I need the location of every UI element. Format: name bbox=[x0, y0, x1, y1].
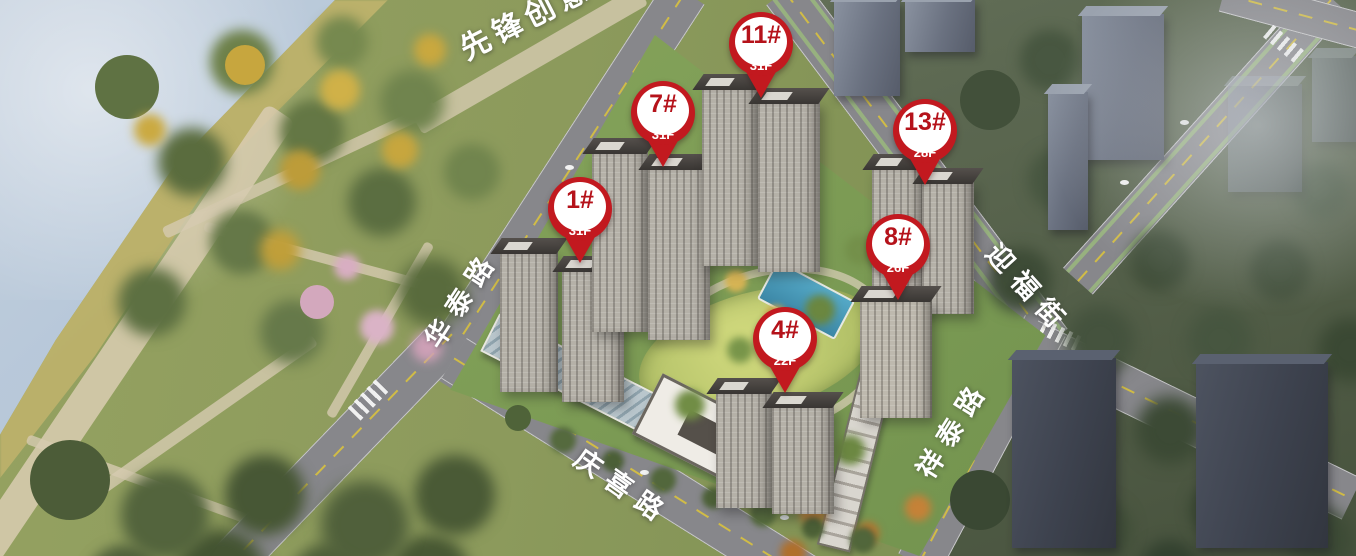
pin-circle: 8# 26F bbox=[866, 214, 930, 278]
pin-floor-count: 31F bbox=[729, 58, 793, 73]
building-pin-13[interactable]: 13# 28F bbox=[893, 99, 957, 187]
city-building-massing bbox=[905, 0, 975, 52]
residential-tower-7b bbox=[648, 168, 710, 340]
residential-tower-11b bbox=[758, 102, 820, 272]
residential-tower-11a bbox=[702, 88, 758, 266]
city-building-massing bbox=[1312, 56, 1356, 142]
tree-cluster-dark bbox=[30, 440, 110, 520]
pin-building-number: 1# bbox=[548, 186, 612, 215]
pin-floor-count: 31F bbox=[631, 127, 695, 142]
tree-cluster-pink bbox=[300, 285, 334, 319]
city-building-massing bbox=[1048, 92, 1088, 230]
pin-circle: 11# 31F bbox=[729, 12, 793, 76]
pin-floor-count: 31F bbox=[548, 223, 612, 238]
pin-building-number: 4# bbox=[753, 316, 817, 345]
building-pin-4[interactable]: 4# 22F bbox=[753, 307, 817, 395]
pin-floor-count: 28F bbox=[893, 145, 957, 160]
building-pin-11[interactable]: 11# 31F bbox=[729, 12, 793, 100]
building-pin-1[interactable]: 1# 31F bbox=[548, 177, 612, 265]
aerial-site-plan: 先锋创意 华泰路 迎福街 祥泰路 庆喜路 1# 31F 4# 22F 7# 31… bbox=[0, 0, 1356, 556]
pin-circle: 7# 31F bbox=[631, 81, 695, 145]
city-building-massing bbox=[1196, 362, 1328, 548]
residential-tower-4a bbox=[716, 392, 772, 508]
city-building-massing bbox=[1082, 14, 1164, 160]
building-pin-8[interactable]: 8# 26F bbox=[866, 214, 930, 302]
roadside-trees bbox=[505, 405, 531, 431]
vehicles bbox=[565, 165, 574, 170]
pin-floor-count: 26F bbox=[866, 260, 930, 275]
residential-tower-1a bbox=[500, 252, 558, 392]
pin-circle: 13# 28F bbox=[893, 99, 957, 163]
pin-circle: 1# 31F bbox=[548, 177, 612, 241]
city-building-massing bbox=[834, 0, 900, 96]
pin-building-number: 13# bbox=[893, 108, 957, 137]
pin-building-number: 11# bbox=[729, 21, 793, 50]
pin-building-number: 8# bbox=[866, 223, 930, 252]
pin-floor-count: 22F bbox=[753, 353, 817, 368]
tree-cluster-yellow bbox=[225, 45, 265, 85]
pin-building-number: 7# bbox=[631, 90, 695, 119]
city-building-massing bbox=[1228, 84, 1302, 192]
city-tree-cluster bbox=[950, 470, 1010, 530]
city-building-massing bbox=[1012, 358, 1116, 548]
building-pin-7[interactable]: 7# 31F bbox=[631, 81, 695, 169]
residential-tower-8 bbox=[860, 300, 932, 418]
city-tree-cluster bbox=[960, 70, 1020, 130]
tree-cluster bbox=[95, 55, 159, 119]
residential-tower-4b bbox=[772, 406, 834, 514]
pin-circle: 4# 22F bbox=[753, 307, 817, 371]
